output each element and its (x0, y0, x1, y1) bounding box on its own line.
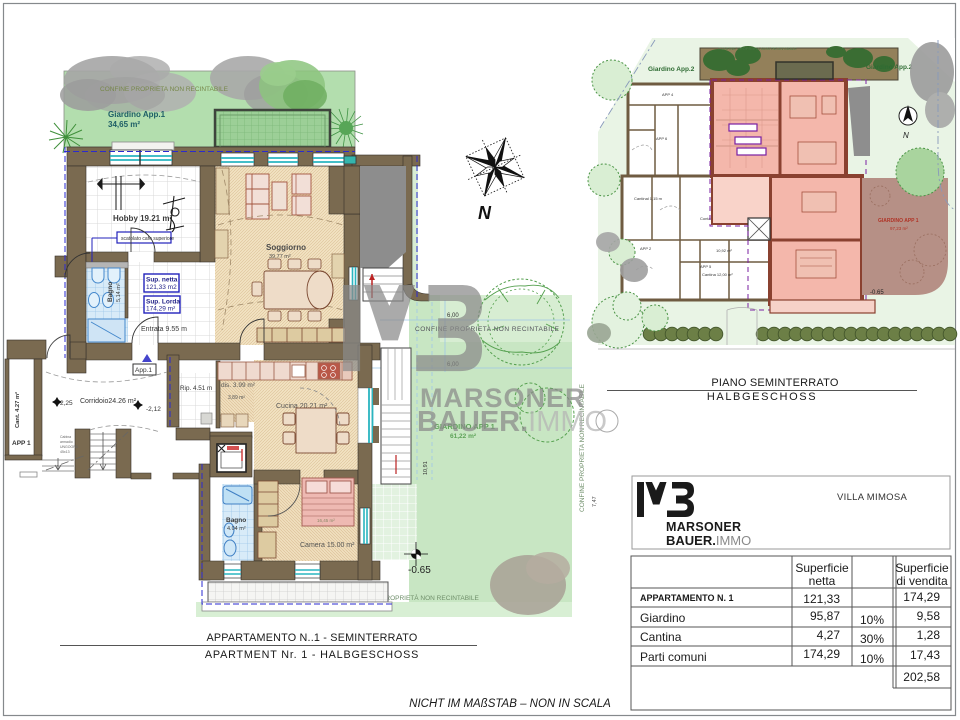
svg-text:Giardino App.2: Giardino App.2 (648, 66, 695, 73)
svg-text:121,33: 121,33 (803, 592, 840, 606)
svg-text:10%: 10% (860, 613, 884, 627)
svg-text:10,92 m²: 10,92 m² (716, 248, 732, 253)
svg-text:VILLA MIMOSA: VILLA MIMOSA (837, 492, 907, 503)
svg-text:Giardino: Giardino (640, 611, 686, 625)
svg-text:HALBGESCHOSS: HALBGESCHOSS (707, 391, 817, 403)
svg-text:97,23 m²: 97,23 m² (890, 226, 908, 231)
svg-text:Rip. 4.51 m: Rip. 4.51 m (180, 385, 212, 392)
svg-text:9,58: 9,58 (917, 609, 941, 623)
svg-text:GIARDINO APP 1: GIARDINO APP 1 (878, 218, 919, 224)
svg-text:Giardino App.1: Giardino App.1 (108, 110, 166, 119)
svg-text:BAUER.IMMO: BAUER.IMMO (417, 406, 607, 438)
svg-text:Cantinal 1,15 m: Cantinal 1,15 m (634, 196, 663, 201)
svg-text:APP 5: APP 5 (700, 264, 712, 269)
svg-text:34,65 m²: 34,65 m² (108, 120, 140, 129)
svg-text:4.04 m²: 4.04 m² (227, 526, 246, 532)
svg-text:Entrata 9.55 m: Entrata 9.55 m (141, 326, 187, 333)
svg-text:Sup. Lorda: Sup. Lorda (146, 299, 180, 306)
svg-text:Superficie: Superficie (895, 561, 949, 575)
svg-text:Cantina: Cantina (640, 630, 682, 644)
svg-text:5,14 m²: 5,14 m² (116, 283, 122, 302)
svg-text:APPARTAMENTO N. 1: APPARTAMENTO N. 1 (640, 593, 734, 603)
svg-text:Parti comuni: Parti comuni (640, 650, 707, 664)
svg-text:netta: netta (809, 574, 836, 588)
svg-text:APP 4: APP 4 (662, 92, 674, 97)
svg-text:N: N (478, 203, 492, 223)
svg-text:APARTMENT Nr. 1 - HALBGESCHOSS: APARTMENT Nr. 1 - HALBGESCHOSS (205, 649, 419, 661)
svg-text:4,27: 4,27 (817, 628, 841, 642)
svg-text:-2,12: -2,12 (146, 406, 161, 413)
svg-text:Cabina: Cabina (60, 435, 71, 439)
svg-text:dis. 3.99 m²: dis. 3.99 m² (221, 382, 256, 389)
svg-text:Superficie: Superficie (795, 561, 849, 575)
svg-text:45x13: 45x13 (60, 450, 70, 454)
svg-text:Cant. 4.27 m²: Cant. 4.27 m² (14, 392, 21, 428)
svg-text:-0.65: -0.65 (408, 565, 431, 576)
svg-text:16,45 m²: 16,45 m² (317, 518, 335, 523)
svg-text:121,33 m2: 121,33 m2 (146, 284, 177, 291)
svg-text:Soggiorno: Soggiorno (266, 243, 306, 252)
svg-text:App.1: App.1 (135, 367, 152, 374)
svg-text:7,47: 7,47 (592, 496, 598, 507)
svg-text:1,28: 1,28 (917, 628, 941, 642)
svg-text:MARSONER: MARSONER (666, 520, 741, 534)
svg-text:APP 1: APP 1 (12, 440, 31, 447)
svg-text:Corridoio24.26 m²: Corridoio24.26 m² (80, 398, 137, 405)
svg-text:Hobby 19.21 m²: Hobby 19.21 m² (113, 214, 172, 223)
svg-text:NICHT IM MAßSTAB – NON IN SCAL: NICHT IM MAßSTAB – NON IN SCALA (409, 698, 611, 710)
svg-text:2,25: 2,25 (60, 400, 73, 407)
svg-text:armadio: armadio (60, 440, 73, 444)
svg-text:10%: 10% (860, 652, 884, 666)
svg-text:scatolato cafe superiore: scatolato cafe superiore (121, 236, 174, 242)
svg-text:Bagno: Bagno (226, 517, 246, 524)
svg-text:APP 2: APP 2 (640, 246, 652, 251)
svg-text:10,91: 10,91 (423, 461, 429, 475)
svg-text:di vendita: di vendita (896, 574, 948, 588)
svg-text:3,89 m²: 3,89 m² (228, 395, 245, 401)
svg-text:APPARTAMENTO N..1 - SEMINTERRA: APPARTAMENTO N..1 - SEMINTERRATO (207, 632, 418, 644)
svg-text:CONFINE PROPRIETA NON RECINTAB: CONFINE PROPRIETA NON RECINTABILE (718, 46, 797, 51)
svg-text:Sup. netta: Sup. netta (146, 277, 178, 284)
svg-text:UNGOORD: UNGOORD (60, 445, 79, 449)
svg-text:PIANO SEMINTERRATO: PIANO SEMINTERRATO (711, 377, 839, 389)
svg-text:BAUER.IMMO: BAUER.IMMO (666, 533, 751, 548)
svg-text:6,00: 6,00 (447, 313, 459, 319)
svg-text:Cantina 12,00 m²: Cantina 12,00 m² (702, 272, 733, 277)
svg-text:N: N (903, 131, 909, 140)
svg-text:174,29: 174,29 (803, 647, 840, 661)
svg-text:CONFINE PROPRIETA NON RECINTAB: CONFINE PROPRIETA NON RECINTABILE (415, 326, 560, 333)
svg-text:Bagno: Bagno (107, 282, 114, 302)
svg-text:-0.65: -0.65 (870, 290, 884, 296)
svg-text:CONFINE PROPRIETA NON RECINTAB: CONFINE PROPRIETA NON RECINTABILE (100, 86, 229, 93)
svg-text:202,58: 202,58 (903, 670, 940, 684)
svg-text:95,87: 95,87 (810, 609, 840, 623)
svg-text:30%: 30% (860, 632, 884, 646)
svg-text:174,29: 174,29 (903, 590, 940, 604)
svg-text:174,29 m²: 174,29 m² (146, 306, 176, 313)
svg-text:17,43: 17,43 (910, 648, 940, 662)
svg-text:APP 6: APP 6 (656, 136, 668, 141)
svg-text:Giardino App.2: Giardino App.2 (866, 64, 913, 71)
svg-text:Camera 15.00 m²: Camera 15.00 m² (300, 542, 355, 549)
